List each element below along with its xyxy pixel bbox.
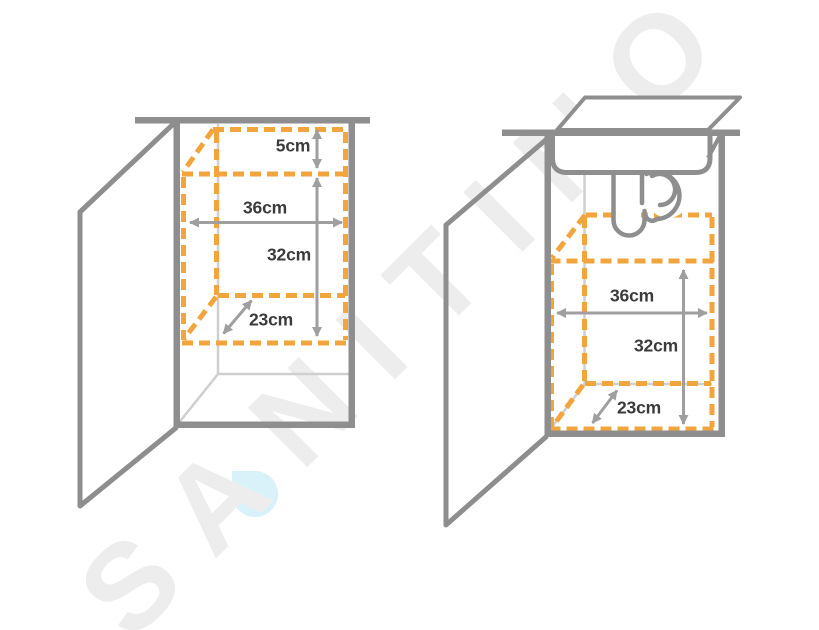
diagram-canvas [0,0,819,630]
right-cabinet-outline [446,98,740,526]
left-height-label: 32cm [267,245,311,266]
right-depth-label: 23cm [617,398,661,419]
sink-trap-icon [614,170,690,236]
right-height-label: 32cm [634,336,678,357]
left-open-door [80,121,177,506]
right-depth-arrow [593,391,618,424]
dimension-diagram: SANITINO [0,0,819,630]
left-width-label: 36cm [243,198,287,219]
left-depth-arrow [224,301,252,334]
left-cabinet-interior-lines [180,124,351,422]
right-cabinet [446,98,740,526]
left-cabinet [80,117,370,506]
right-width-label: 36cm [610,286,654,307]
left-clearance-label: 5cm [276,136,310,157]
right-open-door [446,138,548,525]
left-depth-label: 23cm [249,310,293,331]
sink-basin [553,132,711,173]
sink-countertop-slab [557,98,740,131]
